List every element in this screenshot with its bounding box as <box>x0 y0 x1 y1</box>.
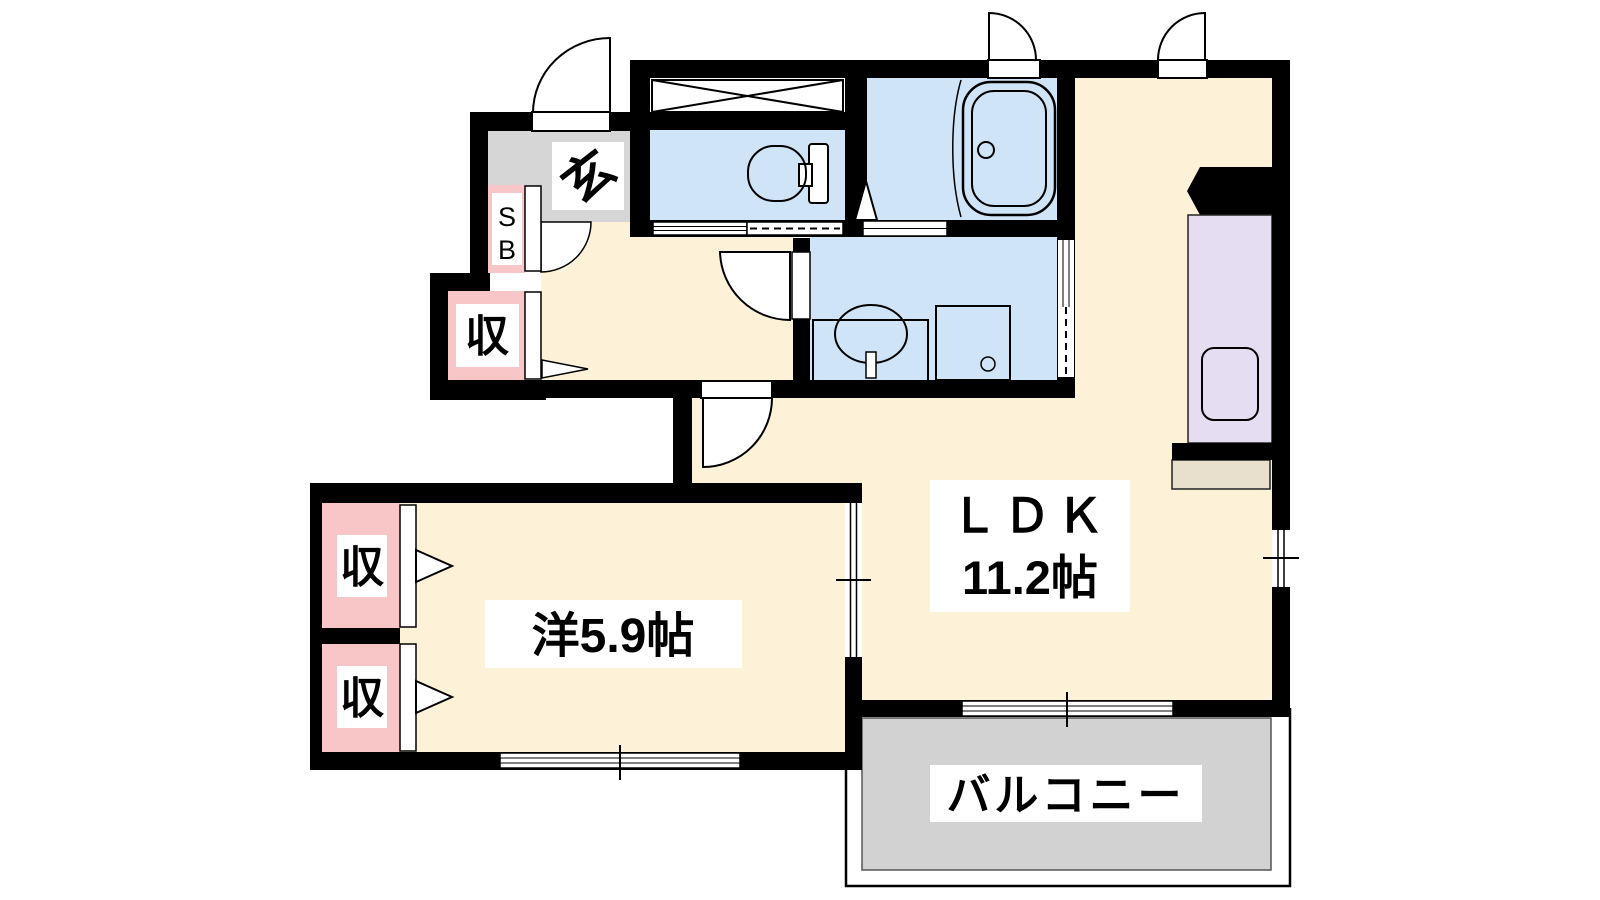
wall <box>430 380 546 400</box>
wall <box>673 397 692 484</box>
bedroom-label: 洋5.9帖 <box>532 610 695 663</box>
ldk-top-door-swing <box>1158 13 1205 60</box>
wall <box>322 628 400 644</box>
bathroom-top-door-swing <box>989 13 1036 60</box>
washroom-door-leaf <box>792 252 810 319</box>
kitchen-tan-counter <box>1172 460 1270 489</box>
wall <box>540 380 1075 398</box>
ldk-hall-door-leaf <box>701 381 772 398</box>
wall <box>630 60 650 237</box>
shoe-box-letter-bottom: B <box>498 235 516 265</box>
wall <box>470 112 488 291</box>
entrance-closet-door <box>525 292 541 379</box>
bedroom-closet-door-lower <box>400 644 416 751</box>
wall <box>1272 60 1290 717</box>
washroom-window <box>1058 240 1074 307</box>
ldk-top-door-leaf <box>1158 60 1207 78</box>
shoe-box-letter-top: S <box>498 202 516 232</box>
bedroom-closet-door-upper <box>400 505 416 627</box>
kitchen-duct-block <box>1187 167 1272 215</box>
wall <box>1172 443 1290 460</box>
wall <box>650 112 845 130</box>
washroom-slider-channel <box>1058 307 1074 377</box>
entrance-door-leaf <box>532 112 610 131</box>
entrance-closet-label: 収 <box>465 312 509 361</box>
ldk-size-label: 11.2帖 <box>962 551 1098 604</box>
washroom-floor <box>810 237 1057 382</box>
bathroom-top-door-leaf <box>988 60 1040 78</box>
wall <box>310 483 322 770</box>
balcony-label: バルコニー <box>946 771 1185 820</box>
floor-plan-page: 玄 S B 収 収 収 洋5.9帖 ＬＤＫ 11.2帖 バルコニー <box>0 0 1600 900</box>
closet-upper-label: 収 <box>340 543 384 592</box>
vanity-faucet <box>866 352 876 378</box>
shoe-box-door <box>525 186 541 271</box>
closet-lower-label: 収 <box>340 674 384 723</box>
ldk-name-label: ＬＤＫ <box>951 489 1110 542</box>
kitchen-counter <box>1188 215 1272 443</box>
floor-plan-drawing: 玄 S B 収 収 収 洋5.9帖 ＬＤＫ 11.2帖 バルコニー <box>0 0 1600 900</box>
toilet-transom <box>653 222 747 235</box>
wall <box>310 483 862 503</box>
storage-x-box <box>652 80 843 112</box>
entrance-door-swing <box>533 38 610 113</box>
room-floors <box>322 78 1272 752</box>
